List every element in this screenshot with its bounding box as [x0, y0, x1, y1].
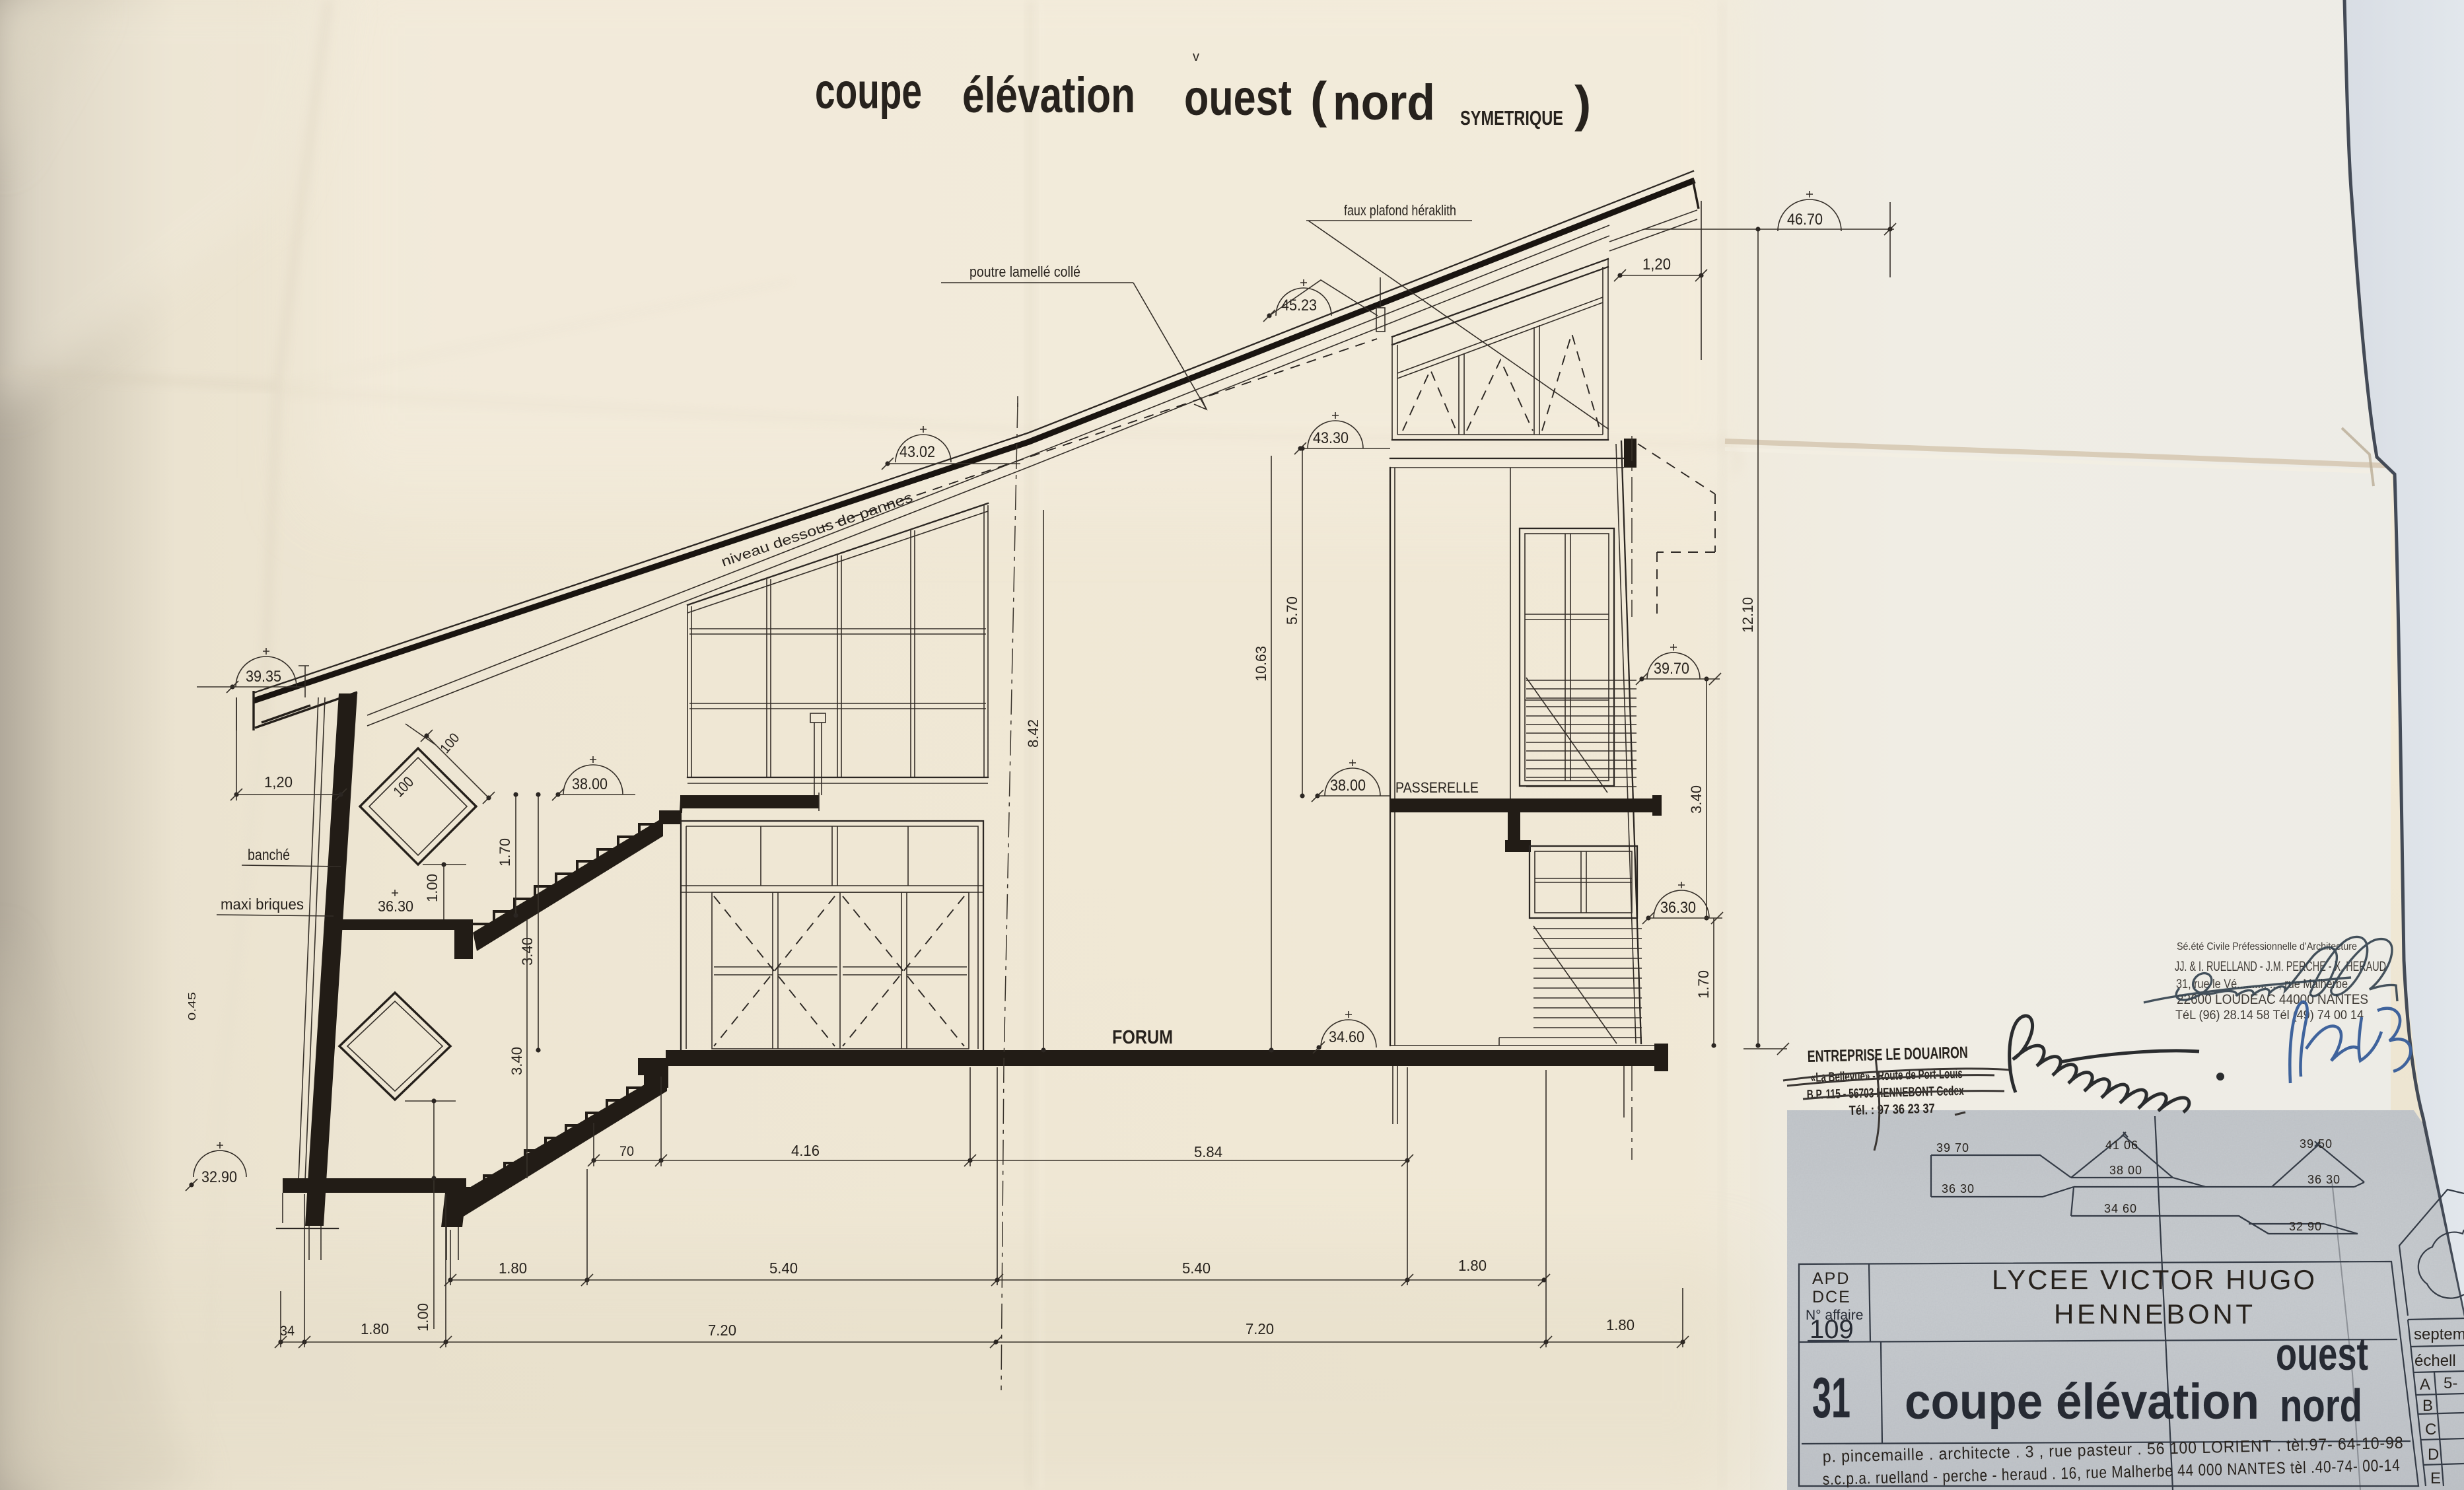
svg-text:32 90: 32 90: [2289, 1220, 2322, 1233]
svg-text:FORUM: FORUM: [1112, 1027, 1173, 1048]
svg-text:5.70: 5.70: [1284, 596, 1300, 625]
svg-text:39.35: 39.35: [246, 668, 281, 686]
svg-text:faux plafond héraklith: faux plafond héraklith: [1344, 202, 1456, 219]
svg-text:1.80: 1.80: [1458, 1257, 1487, 1274]
svg-text:ouest: ouest: [1184, 70, 1292, 126]
svg-text:5-: 5-: [2444, 1374, 2457, 1392]
svg-text:A: A: [2420, 1376, 2430, 1394]
svg-text:3.40: 3.40: [1688, 785, 1705, 814]
svg-text:45.23: 45.23: [1281, 297, 1317, 314]
svg-text:(: (: [1310, 72, 1327, 128]
svg-text:41 06: 41 06: [2105, 1139, 2138, 1152]
svg-text:36 30: 36 30: [1942, 1182, 1975, 1195]
svg-text:B: B: [2422, 1397, 2433, 1415]
svg-text:34: 34: [280, 1324, 295, 1339]
svg-text:APD: APD: [1812, 1269, 1850, 1288]
svg-text:HENNEBONT: HENNEBONT: [2054, 1298, 2253, 1330]
svg-text:nord: nord: [1333, 75, 1435, 131]
svg-text:5.40: 5.40: [1182, 1259, 1211, 1277]
svg-text:maxi briques: maxi briques: [221, 896, 304, 913]
svg-text:TéL (96) 28.14 58 Tél (49): TéL (96) 28.14 58 Tél (49) 74 00 14: [2175, 1009, 2364, 1022]
svg-text:34 60: 34 60: [2104, 1202, 2137, 1215]
svg-text:JJ. & I. RUELLAND - J.M. PERCH: JJ. & I. RUELLAND - J.M. PERCHE - X. HER…: [2175, 959, 2386, 974]
svg-text:109: 109: [1810, 1315, 1854, 1344]
svg-text:1.70: 1.70: [1695, 970, 1712, 999]
svg-text:PASSERELLE: PASSERELLE: [1395, 779, 1479, 796]
svg-text:39 70: 39 70: [1936, 1141, 1969, 1154]
svg-text:DCE: DCE: [1812, 1288, 1851, 1306]
svg-text:1,20: 1,20: [264, 773, 293, 791]
svg-text:70: 70: [619, 1144, 634, 1159]
svg-text:D: D: [2428, 1446, 2439, 1464]
svg-text:C: C: [2425, 1421, 2436, 1438]
svg-text:coupe élévation: coupe élévation: [1905, 1374, 2259, 1430]
svg-text:31: 31: [1812, 1366, 1850, 1430]
svg-text:36.30: 36.30: [1660, 899, 1696, 917]
svg-text:46.70: 46.70: [1787, 211, 1823, 229]
svg-text:10.63: 10.63: [1253, 646, 1269, 682]
svg-text:1.80: 1.80: [499, 1259, 527, 1277]
svg-text:36.30: 36.30: [378, 898, 413, 915]
svg-text:): ): [1574, 76, 1591, 132]
svg-text:7.20: 7.20: [708, 1322, 736, 1339]
svg-text:1,20: 1,20: [1642, 256, 1671, 273]
svg-text:LYCEE VICTOR HUGO: LYCEE VICTOR HUGO: [1992, 1264, 2315, 1295]
svg-text:1.70: 1.70: [497, 838, 513, 867]
svg-text:38 00: 38 00: [2109, 1164, 2142, 1177]
svg-text:36 30: 36 30: [2307, 1173, 2341, 1186]
svg-text:coupe: coupe: [815, 63, 922, 120]
svg-text:3.40: 3.40: [509, 1047, 525, 1075]
svg-text:5.84: 5.84: [1194, 1143, 1222, 1160]
svg-text:12.10: 12.10: [1740, 597, 1756, 633]
svg-text:1.80: 1.80: [361, 1320, 389, 1337]
svg-text:E: E: [2430, 1470, 2441, 1487]
svg-text:v: v: [1193, 50, 1199, 64]
svg-text:8.42: 8.42: [1025, 719, 1041, 748]
svg-text:poutre lamellé collé: poutre lamellé collé: [969, 264, 1080, 280]
svg-text:nord: nord: [2280, 1380, 2362, 1431]
svg-text:43.30: 43.30: [1313, 429, 1349, 447]
svg-text:4.16: 4.16: [791, 1142, 820, 1159]
svg-text:banché: banché: [248, 846, 290, 863]
svg-text:5.40: 5.40: [769, 1259, 798, 1277]
svg-text:1.00: 1.00: [415, 1303, 431, 1331]
svg-text:élévation: élévation: [962, 67, 1135, 124]
svg-text:34.60: 34.60: [1329, 1028, 1364, 1046]
svg-text:39 50: 39 50: [2300, 1137, 2333, 1151]
svg-text:échell: échell: [2414, 1352, 2456, 1370]
svg-text:0.45: 0.45: [187, 992, 198, 1020]
svg-text:septem: septem: [2414, 1326, 2464, 1343]
svg-text:SYMETRIQUE: SYMETRIQUE: [1460, 106, 1563, 129]
svg-text:Tél. : 97 36 23 37: Tél. : 97 36 23 37: [1849, 1102, 1936, 1118]
svg-text:32.90: 32.90: [201, 1168, 237, 1186]
svg-text:43.02: 43.02: [899, 443, 935, 461]
svg-text:ouest: ouest: [2276, 1328, 2368, 1380]
svg-text:1.80: 1.80: [1606, 1316, 1635, 1333]
svg-text:38.00: 38.00: [1330, 777, 1366, 795]
svg-text:7.20: 7.20: [1246, 1320, 1274, 1337]
svg-text:1.00: 1.00: [424, 874, 440, 902]
svg-text:39.70: 39.70: [1654, 660, 1689, 678]
svg-text:38.00: 38.00: [572, 775, 608, 793]
